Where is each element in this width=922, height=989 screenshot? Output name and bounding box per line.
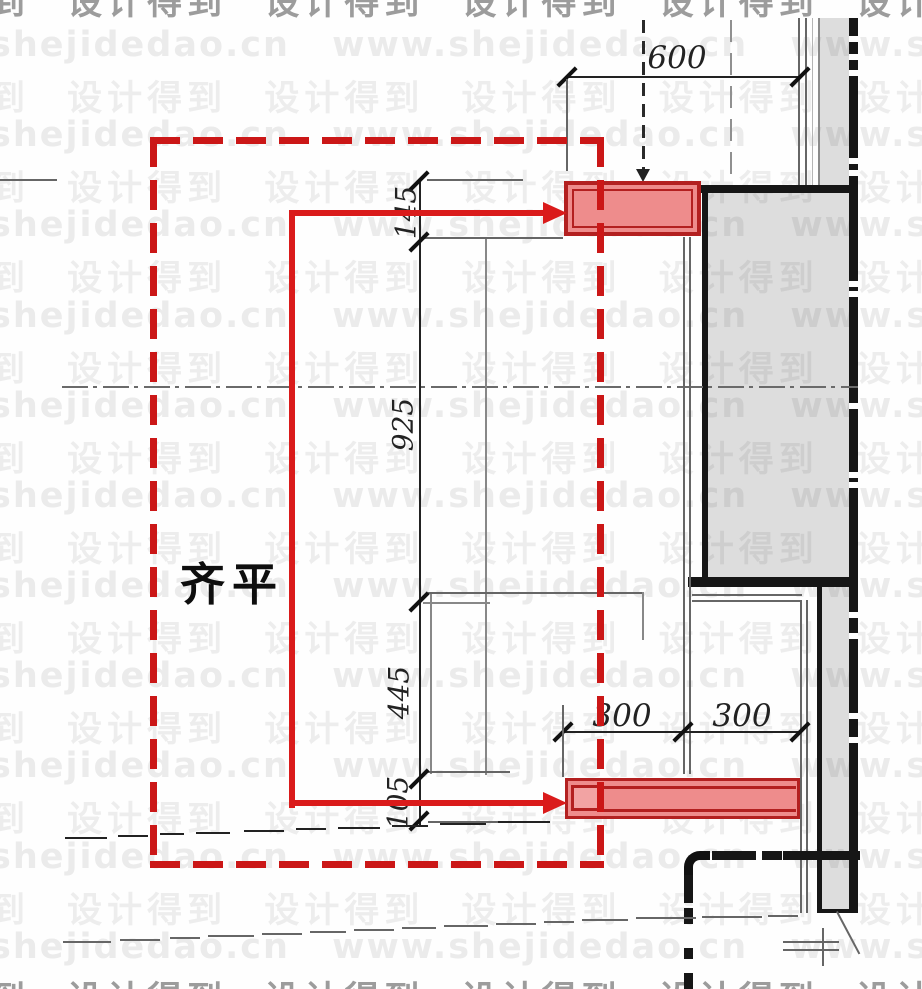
flush-bracket-line — [289, 210, 545, 216]
wall-hatch-upper — [818, 18, 851, 190]
cad-section-drawing: 到 设计得到 设计得到 设计得到 设计得到 设计得到 设计得shejidedao… — [0, 0, 922, 989]
cabinet-side-line — [683, 237, 685, 774]
section-line-dash — [544, 921, 574, 923]
dimension-600-label: 600 — [640, 40, 714, 76]
highlighted-panel-bottom-line — [602, 809, 796, 812]
boundary-dash — [712, 851, 756, 860]
wall-finish-line — [805, 18, 807, 190]
dimension-line — [567, 76, 801, 78]
boundary-dash — [684, 973, 693, 989]
watermark-text: shejidedao.cn www.shejidedao.cn www.shej… — [0, 927, 922, 967]
section-line-dash — [496, 923, 536, 925]
dimension-925-label: 925 — [387, 385, 420, 465]
watermark-text: 到 设计得到 设计得到 设计得到 设计得到 设计得到 设计得 — [0, 0, 922, 25]
section-line-dash — [296, 828, 326, 830]
centerline-dashed — [642, 20, 645, 170]
wall-edge-black — [849, 18, 858, 913]
wall-edge-notch — [849, 158, 858, 164]
section-line-dash — [244, 830, 284, 832]
dimension-445-label: 445 — [383, 653, 416, 733]
cabinet-interior-line — [430, 592, 432, 774]
section-line-dash — [118, 835, 148, 837]
extension-line — [0, 179, 57, 181]
section-line-dash — [196, 832, 230, 834]
wall-edge-notch — [849, 291, 858, 297]
wall-finish-line — [806, 600, 808, 913]
reference-dashdot-line — [62, 386, 858, 388]
wall-edge-notch — [849, 713, 858, 719]
section-line-dash — [170, 937, 200, 939]
extension-line — [425, 771, 510, 773]
section-line-dash — [582, 919, 628, 921]
flush-bracket-line — [289, 800, 545, 806]
watermark-text: shejidedao.cn www.shejidedao.cn www.shej… — [0, 656, 922, 696]
highlight-dashed-box-bottom — [150, 861, 604, 868]
extension-line — [422, 237, 563, 239]
soffit-finish-line — [692, 594, 802, 596]
dimension-300-label: 300 — [706, 698, 778, 734]
wall-edge-notch — [849, 403, 858, 409]
wall-finish-line — [800, 600, 802, 913]
section-line-dash — [402, 927, 436, 929]
flush-bracket-line — [289, 210, 295, 808]
wall-edge-black — [688, 577, 853, 587]
wall-edge-notch — [849, 612, 858, 618]
section-line-dash — [120, 939, 160, 941]
wall-hatch-lower — [822, 587, 849, 913]
section-line-dash — [768, 915, 798, 917]
red-arrow-icon — [543, 792, 567, 814]
highlighted-panel-top-inner — [572, 189, 693, 228]
boundary-dash — [684, 948, 693, 959]
section-line-dash — [702, 916, 762, 918]
section-line-dash — [636, 917, 696, 919]
dimension-line — [419, 179, 421, 825]
watermark-text: 到 设计得到 设计得到 设计得到 设计得到 设计得到 设计得 — [0, 611, 922, 662]
wall-edge-black — [783, 851, 860, 860]
boundary-corner — [684, 851, 710, 877]
niche-edge-line — [642, 592, 644, 640]
wall-edge-notch — [849, 36, 858, 42]
wall-edge-notch — [849, 54, 858, 60]
section-line-dash — [65, 837, 107, 839]
section-line-dash — [262, 933, 302, 935]
flush-label: 齐平 — [180, 548, 284, 613]
section-line-dash — [310, 931, 346, 933]
step-detail-line — [822, 928, 824, 966]
watermark-text: shejidedao.cn www.shejidedao.cn www.shej… — [0, 115, 922, 155]
wall-edge-notch — [849, 737, 858, 743]
boundary-dash — [684, 908, 693, 924]
soffit-black-edge — [701, 185, 858, 193]
step-detail-line — [783, 949, 839, 951]
watermark-text: 到 设计得到 设计得到 设计得到 设计得到 设计得到 设计得 — [0, 701, 922, 752]
red-arrow-icon — [543, 202, 567, 224]
section-line-dash — [392, 825, 428, 827]
highlight-dashed-box-right — [597, 137, 604, 868]
extension-line — [562, 705, 564, 777]
section-line-dash — [444, 925, 488, 927]
wall-edge-notch — [849, 281, 858, 287]
section-line-dash — [160, 833, 184, 835]
extension-line — [566, 79, 568, 171]
wall-edge-notch — [849, 472, 858, 478]
wall-edge-notch — [849, 170, 858, 176]
soffit-finish-line — [692, 600, 802, 602]
watermark-text: shejidedao.cn www.shejidedao.cn www.shej… — [0, 25, 922, 65]
highlight-dashed-box-left — [150, 137, 157, 868]
watermark-text: 到 设计得到 设计得到 设计得到 设计得到 设计得到 设计得 — [0, 971, 922, 989]
boundary-dash — [762, 851, 782, 860]
section-line-dash — [440, 823, 486, 825]
wall-edge-notch — [849, 633, 858, 639]
desk-surface-line — [428, 592, 643, 594]
wall-edge-notch — [849, 482, 858, 488]
highlighted-panel-bottom-line — [602, 786, 796, 789]
section-line-dash — [208, 935, 254, 937]
section-line-dash — [354, 929, 394, 931]
section-line-dash — [338, 827, 380, 829]
cabinet-interior-line — [485, 238, 487, 775]
extension-line — [423, 602, 490, 604]
highlight-dashed-box-top — [150, 137, 604, 144]
section-line-dash — [498, 821, 550, 823]
extension-line — [427, 179, 523, 181]
section-line-dash — [63, 941, 111, 943]
wall-finish-line — [812, 18, 813, 190]
cabinet-side-line — [689, 237, 691, 774]
wall-edge-notch — [849, 70, 858, 76]
centerline-dashed — [730, 20, 732, 178]
step-detail-line — [783, 941, 839, 943]
boundary-dash — [684, 875, 693, 903]
wall-finish-line — [798, 18, 800, 190]
